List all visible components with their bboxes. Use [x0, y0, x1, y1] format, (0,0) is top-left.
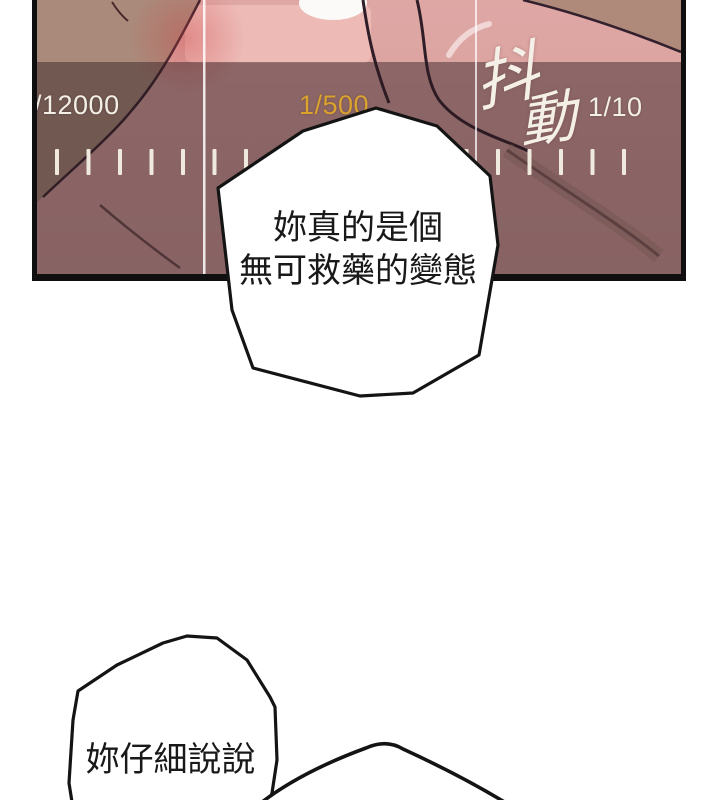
speech-bubbles-layer: [0, 0, 720, 800]
speech-bubble-1-line-1: 妳真的是個: [214, 207, 502, 250]
speech-bubble-1-line-2: 無可救藥的變態: [214, 250, 502, 293]
speech-bubble-2-line-1: 妳仔細說說: [78, 739, 263, 782]
speech-bubble-1-text: 妳真的是個 無可救藥的變態: [214, 207, 502, 293]
speech-bubble-3-partial: [257, 744, 511, 800]
speech-bubble-2-text: 妳仔細說說: [78, 739, 263, 782]
comic-page: /12000 1/500 1/10 抖 動 妳真的是個 無可救藥的變態 妳仔細說…: [0, 0, 720, 800]
